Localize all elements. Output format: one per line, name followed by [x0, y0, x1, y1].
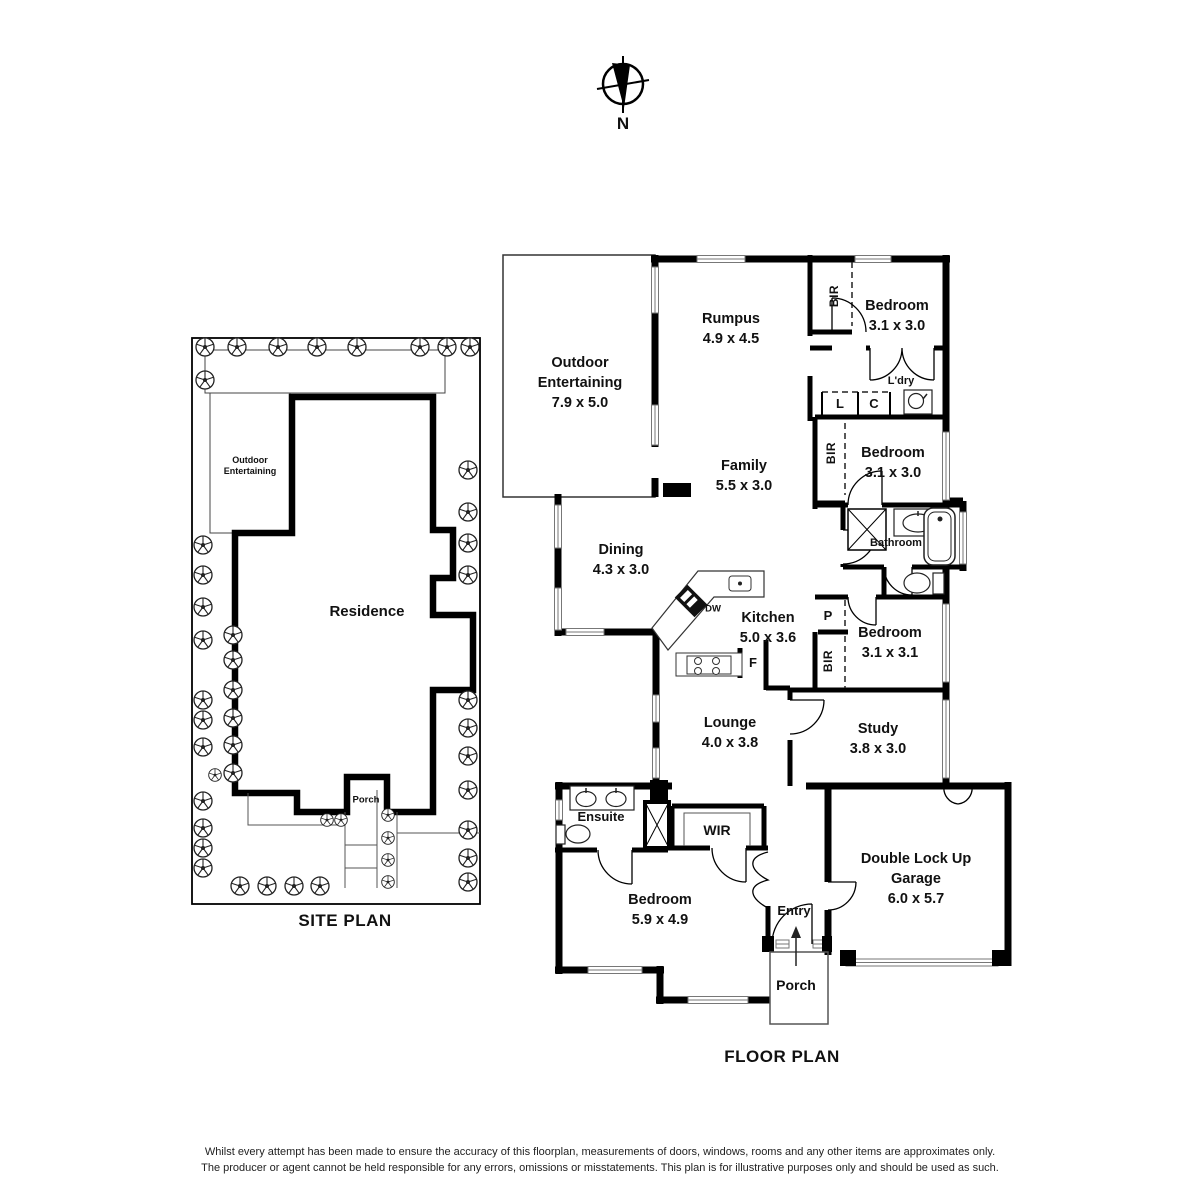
disclaimer-line-2: The producer or agent cannot be held res…	[0, 1162, 1200, 1174]
pantry-label: P	[824, 606, 833, 626]
fridge-label: F	[749, 653, 757, 673]
floorplan-page: N Outdoor Entertaining 7.9 x 5.0 Rumpus …	[0, 0, 1200, 1200]
wir-label: WIR	[703, 820, 730, 840]
bir-label-2: BIR	[821, 442, 841, 464]
room-label-bedroom3: Bedroom 3.1 x 3.1	[858, 623, 922, 663]
laundry-label: L'dry	[888, 371, 914, 391]
room-label-outdoor: Outdoor Entertaining 7.9 x 5.0	[520, 353, 640, 413]
bathtub-icon	[924, 508, 955, 565]
bathroom-label: Bathroom	[870, 533, 922, 553]
room-label-kitchen: Kitchen 5.0 x 3.6	[740, 608, 796, 648]
cooktop-icon	[676, 653, 742, 676]
site-outdoor-label: Outdoor Entertaining	[215, 455, 285, 477]
entry-label: Entry	[777, 901, 810, 921]
room-label-rumpus: Rumpus 4.9 x 4.5	[702, 309, 760, 349]
floor-plan-title: FLOOR PLAN	[724, 1047, 840, 1067]
room-label-dining: Dining 4.3 x 3.0	[593, 540, 649, 580]
entry-arrow-icon	[791, 926, 801, 966]
site-plan-title: SITE PLAN	[298, 911, 391, 931]
room-label-bedroom1: Bedroom 3.1 x 3.0	[865, 296, 929, 336]
cupboard-label: C	[869, 394, 878, 414]
bir-label-3: BIR	[818, 650, 838, 672]
dishwasher-label: DW	[705, 604, 721, 615]
plan-drawing	[0, 0, 1200, 1200]
north-arrow-icon	[597, 56, 649, 113]
disclaimer-line-1: Whilst every attempt has been made to en…	[0, 1146, 1200, 1158]
room-label-family: Family 5.5 x 3.0	[716, 456, 772, 496]
room-label-garage: Double Lock Up Garage 6.0 x 5.7	[846, 849, 986, 909]
room-label-bedroom4: Bedroom 5.9 x 4.9	[628, 890, 692, 930]
bir-label-1: BIR	[824, 285, 844, 307]
room-label-study: Study 3.8 x 3.0	[850, 719, 906, 759]
fp-porch-label: Porch	[776, 975, 816, 995]
ensuite-shower-icon	[645, 780, 669, 848]
room-label-lounge: Lounge 4.0 x 3.8	[702, 713, 758, 753]
wc-toilet-icon	[904, 573, 944, 594]
site-residence-label: Residence	[329, 602, 404, 622]
site-porch-label: Porch	[353, 795, 380, 806]
north-label: N	[617, 114, 629, 134]
ensuite-label: Ensuite	[578, 807, 625, 827]
room-label-bedroom2: Bedroom 3.1 x 3.0	[861, 443, 925, 483]
ensuite-toilet-icon	[556, 825, 590, 844]
linen-label: L	[836, 394, 844, 414]
laundry-trough-icon	[904, 390, 932, 414]
